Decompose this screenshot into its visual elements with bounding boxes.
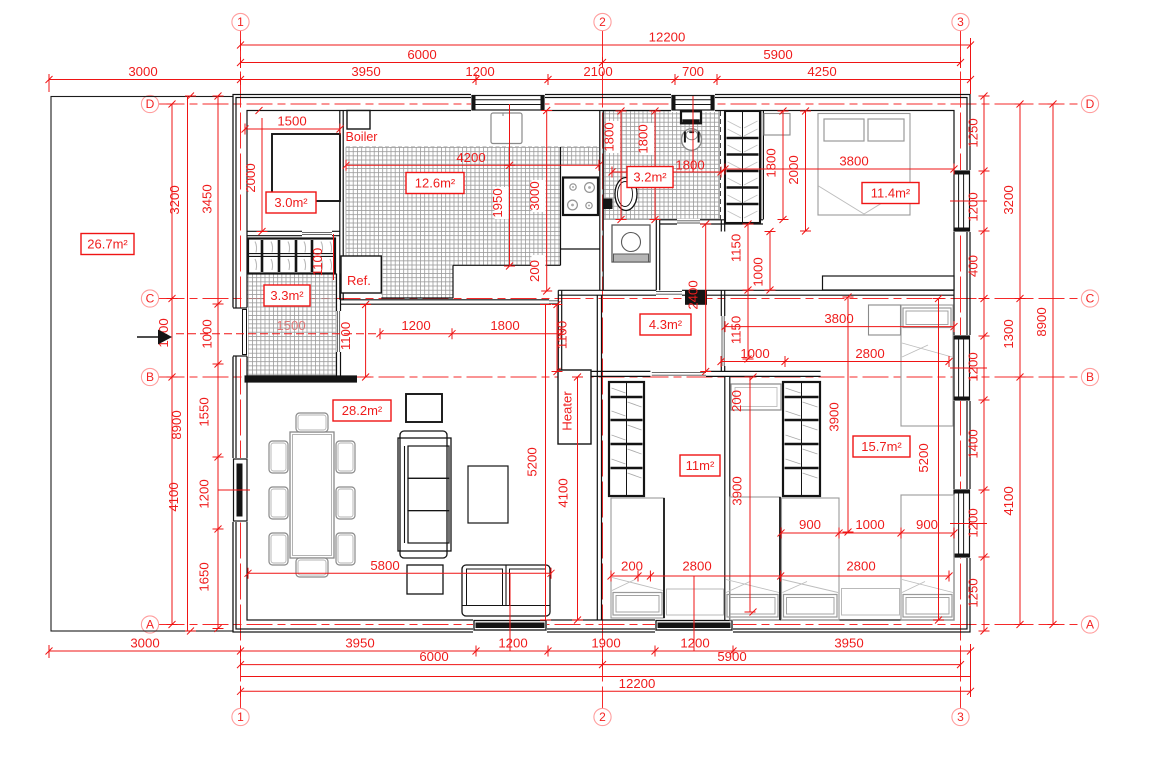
svg-text:3950: 3950 (345, 636, 374, 651)
svg-text:3950: 3950 (351, 64, 380, 79)
svg-text:5200: 5200 (525, 447, 540, 476)
svg-text:Heater: Heater (560, 391, 575, 431)
svg-text:1150: 1150 (729, 234, 744, 262)
svg-text:11.4m²: 11.4m² (871, 186, 911, 201)
svg-text:Ref.: Ref. (347, 273, 371, 288)
svg-text:1100: 1100 (555, 321, 570, 349)
svg-text:1200: 1200 (465, 64, 494, 79)
svg-text:900: 900 (799, 517, 821, 532)
svg-text:1: 1 (237, 710, 244, 724)
svg-text:4100: 4100 (166, 482, 181, 511)
svg-text:3000: 3000 (527, 181, 542, 210)
svg-text:1650: 1650 (197, 562, 212, 591)
svg-text:4.3m²: 4.3m² (649, 317, 683, 332)
svg-text:3450: 3450 (200, 184, 215, 213)
svg-text:3.3m²: 3.3m² (270, 288, 304, 303)
svg-text:1000: 1000 (740, 346, 769, 361)
svg-text:28.2m²: 28.2m² (342, 403, 383, 418)
svg-text:26.7m²: 26.7m² (87, 237, 128, 252)
svg-text:C: C (146, 292, 155, 306)
svg-text:5800: 5800 (370, 558, 399, 573)
svg-text:200: 200 (621, 559, 643, 574)
svg-text:D: D (146, 97, 155, 111)
svg-text:3950: 3950 (834, 636, 863, 651)
svg-text:12.6m²: 12.6m² (415, 176, 456, 191)
svg-text:1300: 1300 (1001, 319, 1016, 348)
svg-text:1000: 1000 (855, 517, 884, 532)
svg-text:1000: 1000 (751, 257, 766, 286)
svg-text:2800: 2800 (846, 559, 875, 574)
svg-text:200: 200 (729, 390, 744, 412)
svg-text:5200: 5200 (916, 443, 931, 472)
svg-text:3: 3 (957, 15, 964, 29)
svg-text:1800: 1800 (602, 122, 617, 151)
svg-text:D: D (1086, 97, 1095, 111)
svg-text:3900: 3900 (827, 402, 842, 431)
svg-text:3.2m²: 3.2m² (633, 170, 667, 185)
svg-text:2: 2 (599, 710, 606, 724)
svg-text:1200: 1200 (680, 636, 709, 651)
svg-text:4100: 4100 (1001, 486, 1016, 515)
svg-text:C: C (1086, 292, 1095, 306)
svg-text:11m²: 11m² (686, 458, 715, 473)
svg-text:1100: 1100 (310, 248, 325, 276)
svg-text:5900: 5900 (763, 47, 792, 62)
svg-text:2000: 2000 (243, 163, 258, 192)
svg-text:3900: 3900 (730, 476, 745, 505)
svg-text:3.0m²: 3.0m² (274, 195, 308, 210)
svg-text:2800: 2800 (855, 346, 884, 361)
svg-text:8900: 8900 (1034, 307, 1049, 336)
svg-text:2400: 2400 (686, 280, 701, 309)
svg-text:4250: 4250 (807, 64, 836, 79)
svg-text:3200: 3200 (167, 185, 182, 214)
svg-text:2800: 2800 (682, 559, 711, 574)
svg-text:8900: 8900 (169, 410, 184, 439)
svg-text:2100: 2100 (583, 64, 612, 79)
svg-text:1: 1 (237, 15, 244, 29)
svg-text:1200: 1200 (498, 636, 527, 651)
svg-text:A: A (1086, 618, 1094, 632)
svg-text:1800: 1800 (675, 158, 704, 173)
svg-text:12200: 12200 (649, 30, 686, 45)
svg-text:6000: 6000 (407, 47, 436, 62)
svg-text:3: 3 (957, 710, 964, 724)
svg-text:12200: 12200 (619, 676, 656, 691)
svg-text:200: 200 (527, 260, 542, 282)
svg-text:Boiler: Boiler (346, 130, 378, 144)
svg-text:1200: 1200 (401, 318, 430, 333)
svg-text:3000: 3000 (130, 636, 159, 651)
svg-text:1550: 1550 (197, 397, 212, 426)
svg-text:15.7m²: 15.7m² (861, 439, 902, 454)
svg-text:1200: 1200 (966, 192, 981, 221)
svg-text:2000: 2000 (786, 155, 801, 184)
svg-text:3800: 3800 (824, 311, 853, 326)
svg-text:2: 2 (599, 15, 606, 29)
svg-text:B: B (1086, 370, 1094, 384)
svg-text:700: 700 (682, 64, 704, 79)
svg-text:4100: 4100 (556, 478, 571, 507)
svg-text:6000: 6000 (419, 649, 448, 664)
svg-text:1150: 1150 (729, 316, 744, 344)
svg-text:1500: 1500 (277, 114, 306, 129)
svg-text:B: B (146, 370, 154, 384)
svg-text:1250: 1250 (966, 578, 981, 607)
svg-text:1200: 1200 (966, 352, 981, 381)
svg-text:1400: 1400 (966, 429, 981, 458)
svg-text:1900: 1900 (591, 636, 620, 651)
svg-text:5900: 5900 (717, 649, 746, 664)
svg-text:3200: 3200 (1001, 185, 1016, 214)
svg-text:1800: 1800 (490, 318, 519, 333)
svg-text:1200: 1200 (197, 479, 212, 508)
svg-text:900: 900 (916, 517, 938, 532)
svg-text:1250: 1250 (966, 118, 981, 147)
svg-text:4200: 4200 (456, 150, 485, 165)
svg-text:3800: 3800 (839, 154, 868, 169)
svg-text:1950: 1950 (490, 188, 505, 217)
svg-text:1800: 1800 (636, 124, 651, 153)
svg-text:3000: 3000 (128, 64, 157, 79)
svg-text:1800: 1800 (764, 148, 779, 177)
svg-text:A: A (146, 618, 154, 632)
svg-text:1100: 1100 (338, 322, 353, 350)
svg-text:400: 400 (966, 255, 981, 277)
